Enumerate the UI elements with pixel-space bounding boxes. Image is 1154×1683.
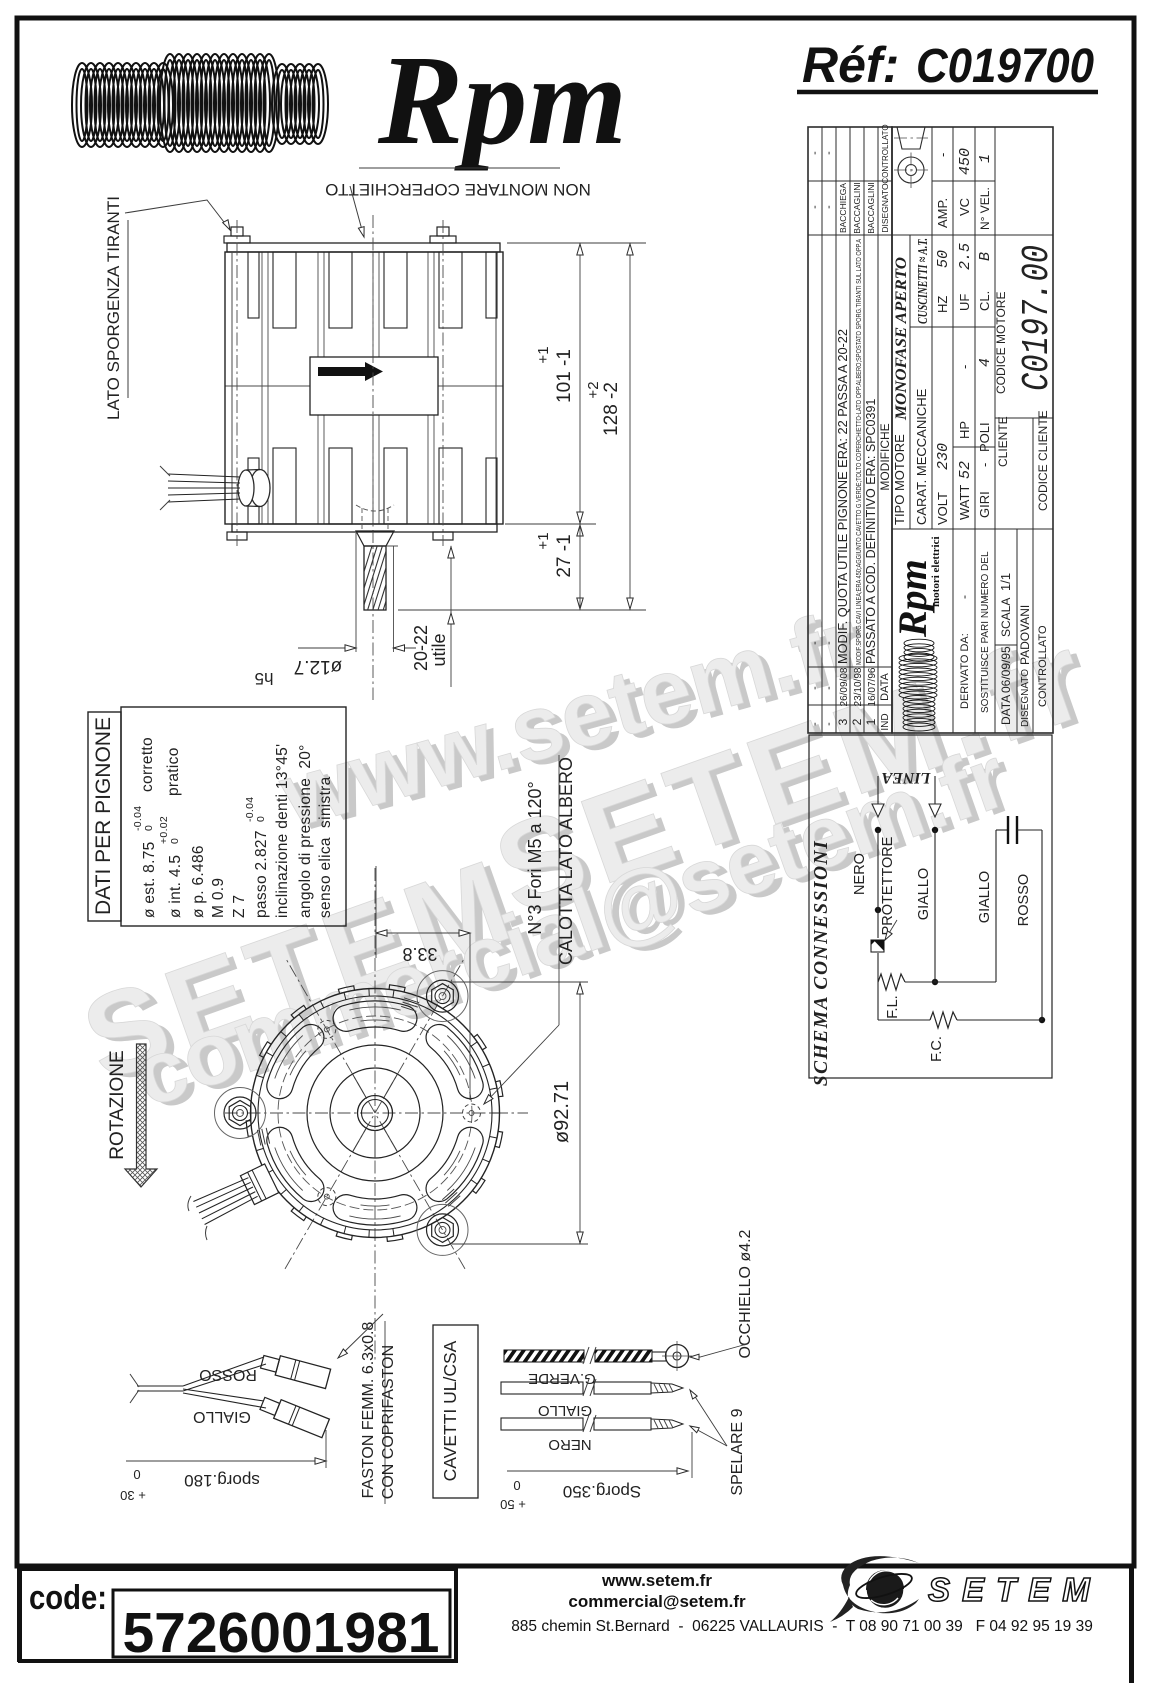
svg-text:SOSTITUISCE PARI NUMERO DEL: SOSTITUISCE PARI NUMERO DEL	[980, 551, 991, 713]
svg-text:POLI: POLI	[977, 422, 992, 452]
svg-text:Rpm: Rpm	[890, 559, 935, 638]
svg-text:230: 230	[935, 443, 952, 470]
svg-text:VOLT: VOLT	[935, 492, 950, 525]
svg-text:code:: code:	[29, 1579, 107, 1617]
svg-text:1: 1	[977, 154, 994, 163]
svg-text:NERO: NERO	[548, 1436, 591, 1453]
svg-text:SPELARE 9: SPELARE 9	[729, 1408, 746, 1495]
svg-text:OCCHIELLO ø4.2: OCCHIELLO ø4.2	[737, 1229, 754, 1358]
svg-text:GIALLO: GIALLO	[916, 868, 932, 920]
svg-text:-: -	[823, 151, 835, 155]
svg-text:0: 0	[255, 816, 267, 822]
svg-text:AMP.: AMP.	[935, 198, 950, 228]
svg-text:ROTAZIONE: ROTAZIONE	[107, 1050, 128, 1159]
svg-text:-: -	[957, 595, 971, 599]
svg-text:CONTROLLATO: CONTROLLATO	[1037, 625, 1049, 707]
svg-text:+1: +1	[535, 532, 552, 549]
svg-text:CON COPRIFASTON: CON COPRIFASTON	[380, 1345, 397, 1499]
svg-text:senso elica sinistra: senso elica sinistra	[317, 776, 334, 918]
svg-text:TIPO MOTORE: TIPO MOTORE	[892, 434, 907, 525]
svg-text:3: 3	[836, 718, 850, 725]
svg-text:Rpm: Rpm	[377, 29, 627, 171]
svg-text:5726001981: 5726001981	[122, 1601, 439, 1665]
svg-text:2.5: 2.5	[957, 243, 974, 270]
svg-text:26/09/08: 26/09/08	[839, 667, 850, 706]
svg-text:CARAT. MECCANICHE: CARAT. MECCANICHE	[914, 388, 929, 525]
svg-text:PADOVANI: PADOVANI	[1018, 605, 1032, 665]
svg-text:WATT: WATT	[957, 485, 972, 520]
svg-text:F.C.: F.C.	[929, 1036, 945, 1062]
svg-text:CL.: CL.	[977, 291, 992, 311]
svg-text:DATA: DATA	[879, 672, 891, 700]
svg-text:1/1: 1/1	[998, 573, 1013, 591]
svg-text:885 chemin St.Bernard - 0622: 885 chemin St.Bernard - 06225 VALLAURIS …	[511, 1618, 1093, 1635]
svg-text:LATO SPORGENZA TIRANTI: LATO SPORGENZA TIRANTI	[104, 196, 123, 420]
svg-text:www.setem.fr: www.setem.fr	[601, 1571, 712, 1590]
svg-text:SETEM: SETEM	[928, 1571, 1102, 1608]
svg-text:BACCAGLINI: BACCAGLINI	[866, 182, 876, 234]
svg-text:DISEGNATO: DISEGNATO	[880, 183, 890, 233]
svg-text:4: 4	[977, 358, 994, 367]
svg-text:06/09/95: 06/09/95	[999, 646, 1013, 693]
svg-text:ROSSO: ROSSO	[199, 1366, 257, 1383]
svg-text:CAVETTI UL/CSA: CAVETTI UL/CSA	[440, 1340, 460, 1481]
svg-text:-: -	[809, 205, 821, 209]
svg-text:GIRI: GIRI	[977, 491, 992, 518]
svg-text:0: 0	[513, 1478, 520, 1493]
svg-text:-: -	[935, 153, 950, 157]
svg-text:52: 52	[957, 461, 974, 479]
svg-text:GIALLO: GIALLO	[538, 1402, 592, 1419]
svg-text:-: -	[823, 205, 835, 209]
svg-text:FASTON FEMM. 6.3x0.8: FASTON FEMM. 6.3x0.8	[360, 1322, 377, 1499]
svg-text:0: 0	[133, 1467, 140, 1482]
svg-text:VC: VC	[957, 198, 972, 216]
svg-text:Sporg.350: Sporg.350	[563, 1482, 641, 1501]
svg-text:-: -	[809, 641, 821, 645]
svg-text:utile: utile	[429, 633, 449, 666]
svg-text:ø est. 8.75: ø est. 8.75	[141, 841, 158, 918]
svg-text:2: 2	[850, 718, 864, 725]
svg-text:0: 0	[143, 825, 155, 831]
svg-text:MODIFICHE: MODIFICHE	[878, 423, 892, 490]
svg-text:-: -	[823, 686, 835, 690]
svg-text:Réf:: Réf:	[802, 37, 899, 93]
svg-text:MODIF. QUOTA UTILE PIGNONE ERA: MODIF. QUOTA UTILE PIGNONE ERA: 22 PASSA…	[836, 329, 850, 664]
svg-text:-: -	[823, 641, 835, 645]
svg-text:BACCHIEGA: BACCHIEGA	[838, 183, 848, 233]
svg-text:+ 50: + 50	[500, 1497, 526, 1512]
svg-text:1: 1	[864, 718, 878, 725]
svg-text:16/07/96: 16/07/96	[867, 667, 878, 706]
svg-text:BACCAGLINI: BACCAGLINI	[852, 182, 862, 234]
svg-text:UF: UF	[957, 294, 972, 311]
svg-text:C0197.00: C0197.00	[1016, 245, 1059, 391]
svg-text:33.8: 33.8	[402, 944, 437, 964]
svg-text:inclinazione denti 13°45ʹ: inclinazione denti 13°45ʹ	[274, 744, 291, 918]
svg-text:50: 50	[935, 250, 952, 268]
svg-text:GIALLO: GIALLO	[977, 871, 993, 923]
svg-text:C019700: C019700	[916, 40, 1094, 93]
svg-text:SCALA: SCALA	[999, 598, 1013, 637]
svg-text:MODIF.SPORG.CAVI LINEA;ERA 450: MODIF.SPORG.CAVI LINEA;ERA 450;AGGIUNTO …	[856, 239, 863, 665]
svg-text:23/10/98: 23/10/98	[853, 667, 864, 706]
svg-text:corretto: corretto	[139, 737, 156, 792]
svg-text:ø p. 6.486: ø p. 6.486	[190, 845, 207, 918]
svg-text:27 -1: 27 -1	[554, 534, 575, 577]
svg-text:CLIENTE: CLIENTE	[996, 416, 1010, 467]
svg-text:128 -2: 128 -2	[601, 382, 622, 436]
svg-text:450: 450	[957, 148, 974, 175]
svg-text:-: -	[809, 151, 821, 155]
svg-text:DERIVATO DA:: DERIVATO DA:	[959, 633, 971, 709]
svg-text:CODICE CLIENTE: CODICE CLIENTE	[1036, 410, 1050, 511]
svg-text:-: -	[957, 365, 972, 369]
svg-text:-: -	[977, 463, 992, 467]
svg-text:G.VERDE: G.VERDE	[528, 1370, 596, 1387]
svg-text:DATA: DATA	[999, 695, 1013, 725]
svg-text:0: 0	[169, 838, 181, 844]
svg-text:B: B	[977, 252, 994, 261]
svg-text:SCHEMA CONNESSIONI: SCHEMA CONNESSIONI	[811, 840, 832, 1086]
svg-text:+1: +1	[535, 346, 552, 363]
svg-text:-: -	[809, 722, 821, 726]
svg-text:ø92.71: ø92.71	[551, 1081, 573, 1143]
svg-text:pratico: pratico	[165, 747, 182, 796]
svg-text:+ 30: + 30	[120, 1488, 146, 1503]
svg-text:101 -1: 101 -1	[554, 349, 575, 403]
svg-text:CUSCINETTI ≈ A.T.: CUSCINETTI ≈ A.T.	[916, 238, 931, 324]
svg-text:N° VEL.: N° VEL.	[978, 187, 992, 230]
svg-text:PASSATO A COD. DEFINITIVO ERA:: PASSATO A COD. DEFINITIVO ERA: SPC0391	[864, 399, 878, 664]
svg-text:commercial@setem.fr: commercial@setem.fr	[568, 1592, 746, 1611]
svg-text:ø int. 4.5: ø int. 4.5	[167, 855, 184, 918]
svg-text:MONOFASE APERTO: MONOFASE APERTO	[893, 257, 910, 421]
svg-text:F.L.: F.L.	[885, 995, 901, 1018]
svg-text:M 0.9: M 0.9	[210, 878, 227, 918]
svg-text:-: -	[823, 722, 835, 726]
svg-text:Z 7: Z 7	[231, 895, 248, 918]
svg-text:PROTETTORE: PROTETTORE	[880, 836, 896, 935]
svg-text:GIALLO: GIALLO	[193, 1408, 251, 1425]
svg-text:LINEA: LINEA	[881, 769, 931, 786]
svg-text:NON MONTARE COPERCHIETTO: NON MONTARE COPERCHIETTO	[325, 180, 591, 199]
svg-text:ROSSO: ROSSO	[1016, 874, 1032, 926]
svg-text:ø12.7: ø12.7	[294, 656, 343, 677]
svg-text:angolo di pressione 20°: angolo di pressione 20°	[297, 744, 314, 918]
svg-text:-: -	[809, 686, 821, 690]
svg-text:motori elettrici: motori elettrici	[930, 536, 942, 607]
svg-text:DATI PER PIGNONE: DATI PER PIGNONE	[92, 717, 115, 915]
svg-text:-: -	[977, 595, 991, 599]
svg-text:CONTROLLATO: CONTROLLATO	[881, 124, 890, 183]
svg-text:NERO: NERO	[852, 853, 868, 895]
svg-text:HZ: HZ	[935, 296, 950, 313]
svg-text:h5: h5	[255, 669, 274, 688]
svg-text:sporg.180: sporg.180	[184, 1471, 260, 1490]
svg-text:IND: IND	[880, 713, 891, 730]
svg-text:passo 2.827: passo 2.827	[253, 830, 270, 918]
svg-text:CODICE MOTORE: CODICE MOTORE	[994, 292, 1008, 394]
svg-text:20-22: 20-22	[411, 625, 431, 671]
svg-text:N°3 Fori M5 a 120°: N°3 Fori M5 a 120°	[525, 781, 545, 934]
svg-text:+2: +2	[585, 381, 602, 398]
svg-text:HP: HP	[957, 421, 972, 439]
svg-text:DISEGNATO: DISEGNATO	[1020, 669, 1031, 727]
